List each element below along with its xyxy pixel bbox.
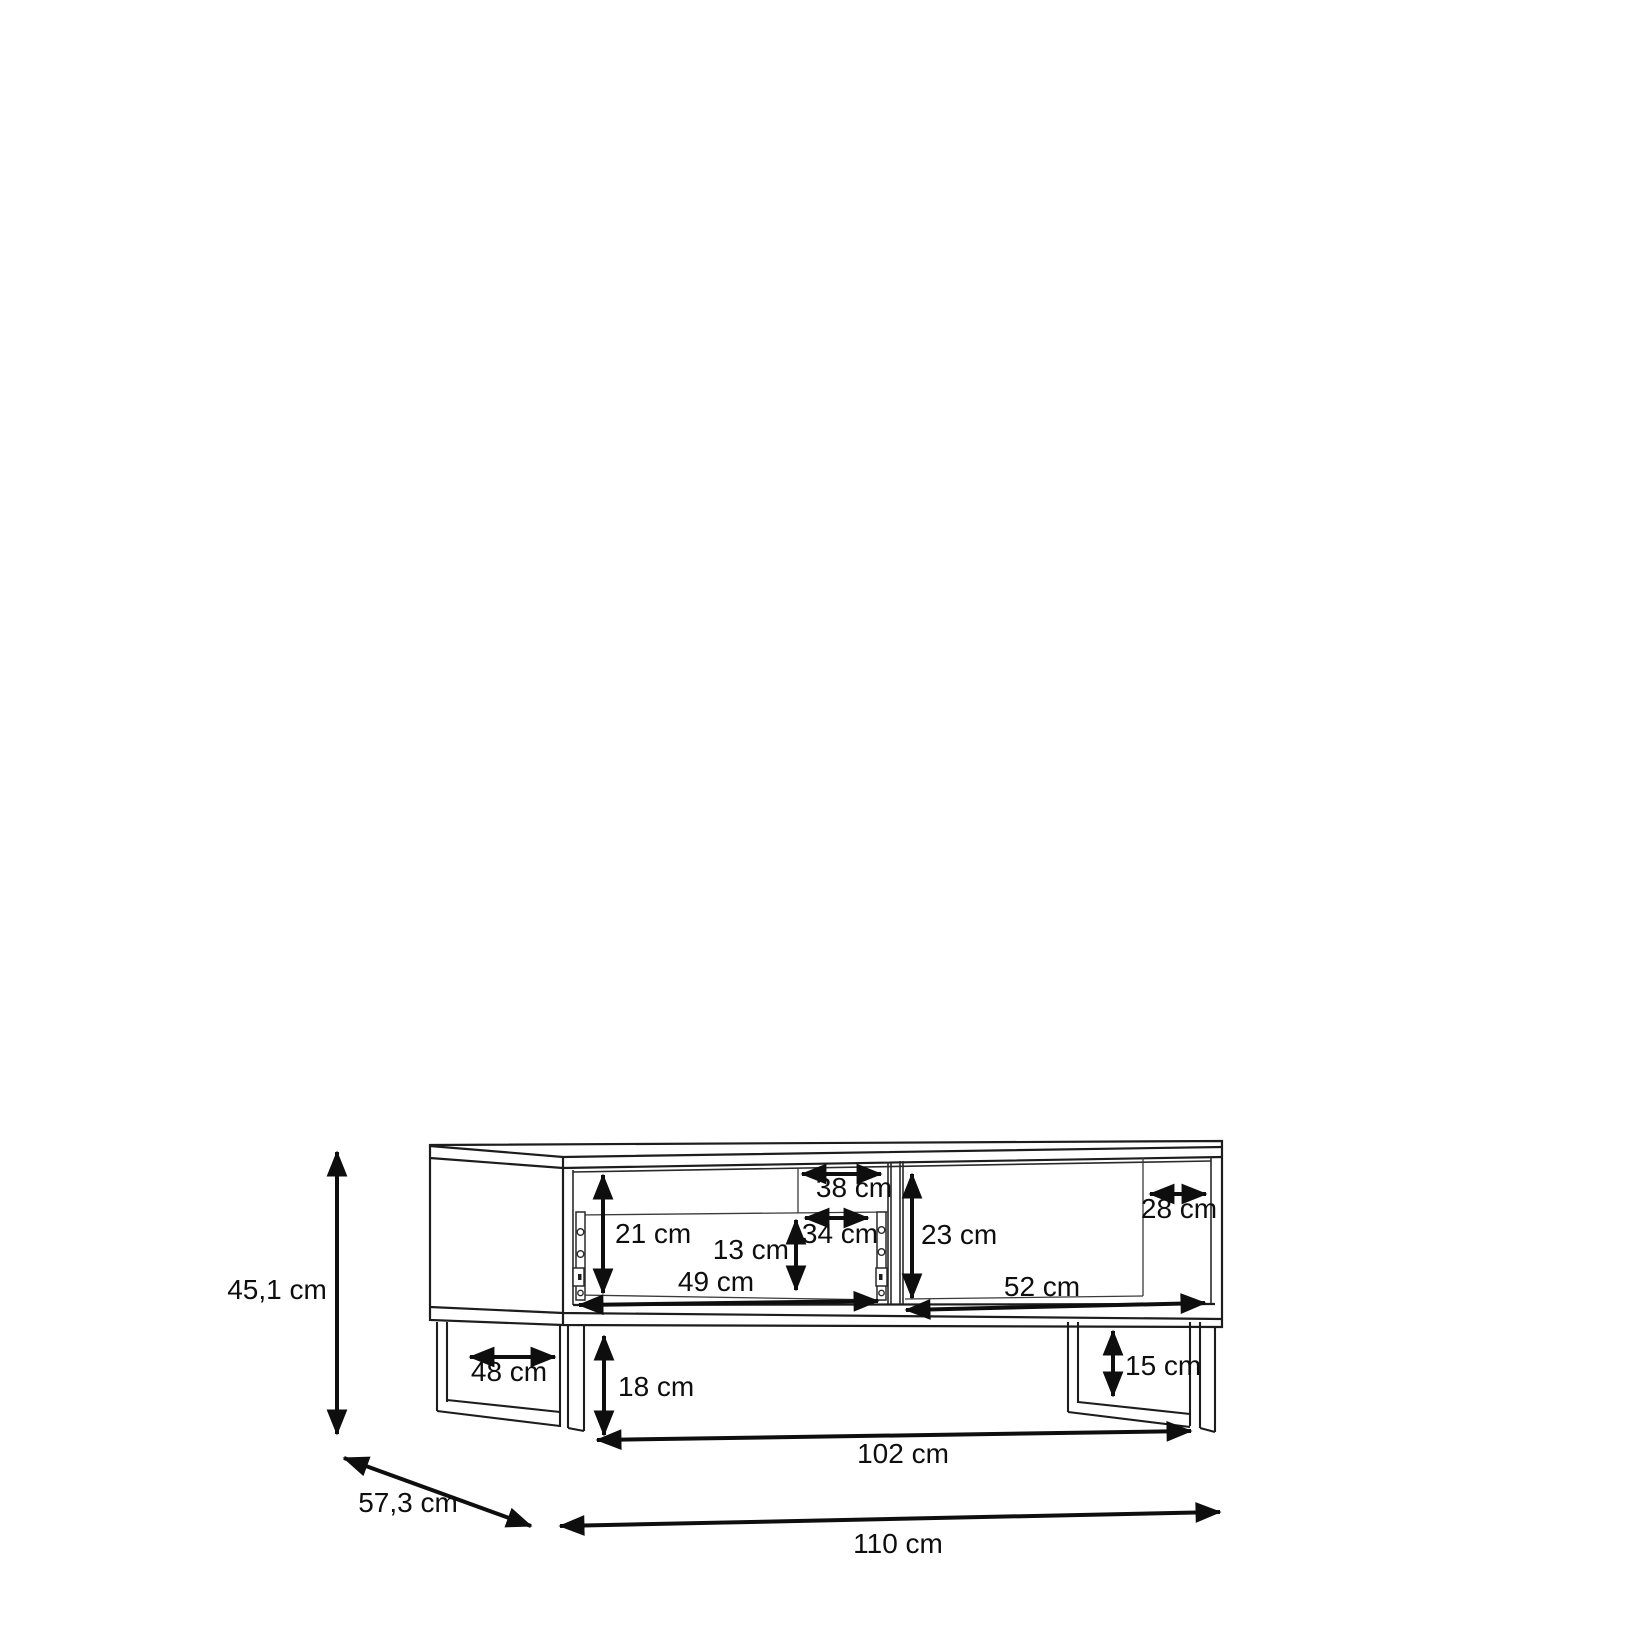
dim-label: 34 cm — [802, 1218, 878, 1249]
dim-leg-inner-height: 15 cm — [1113, 1331, 1201, 1396]
dim-label: 45,1 cm — [227, 1274, 327, 1305]
left-leg-front-post — [560, 1325, 584, 1431]
screw-hole — [577, 1229, 584, 1236]
dim-label: 57,3 cm — [358, 1487, 458, 1518]
diagram-svg: 45,1 cm 57,3 cm 110 cm 102 cm 18 cm 48 c… — [0, 0, 1648, 1648]
left-leg-back-post — [437, 1322, 447, 1411]
dim-label: 15 cm — [1125, 1350, 1201, 1381]
screw-hole — [878, 1227, 885, 1234]
dim-label: 102 cm — [857, 1438, 949, 1469]
dim-label: 28 cm — [1141, 1193, 1217, 1224]
dim-label: 38 cm — [816, 1172, 892, 1203]
top-panel-front-edge — [430, 1146, 1222, 1157]
dim-label: 110 cm — [853, 1528, 943, 1559]
screw-hole — [578, 1290, 583, 1295]
right-leg-left-post — [1068, 1322, 1078, 1412]
bracket-slot — [578, 1274, 582, 1280]
drawer-runner-left — [573, 1212, 585, 1300]
dim-arrow — [560, 1512, 1220, 1526]
dim-leg-inner-depth: 48 cm — [470, 1356, 555, 1387]
dim-overall-height: 45,1 cm — [227, 1152, 337, 1434]
dim-underbody-clearance: 18 cm — [604, 1336, 694, 1435]
dim-label: 21 cm — [615, 1218, 691, 1249]
dim-overall-depth: 57,3 cm — [344, 1458, 531, 1526]
dim-label: 48 cm — [471, 1356, 547, 1387]
dim-base-span: 102 cm — [597, 1431, 1191, 1469]
bracket-slot — [879, 1274, 883, 1280]
screw-hole — [878, 1249, 885, 1256]
dim-right-opening-height: 23 cm — [912, 1174, 997, 1298]
dim-label: 23 cm — [921, 1219, 997, 1250]
screw-hole — [577, 1251, 584, 1258]
furniture-dimension-diagram: 45,1 cm 57,3 cm 110 cm 102 cm 18 cm 48 c… — [0, 0, 1648, 1648]
dim-label: 18 cm — [618, 1371, 694, 1402]
dim-label: 49 cm — [678, 1266, 754, 1297]
runner-rail — [877, 1212, 886, 1300]
dim-right-back-depth: 28 cm — [1141, 1193, 1217, 1224]
dim-left-back-top-width: 38 cm — [802, 1172, 892, 1203]
dim-label: 52 cm — [1004, 1271, 1080, 1302]
dim-overall-width: 110 cm — [560, 1512, 1220, 1559]
screw-hole — [879, 1290, 884, 1295]
dim-label: 13 cm — [713, 1234, 789, 1265]
left-leg-bottom-bar — [437, 1400, 584, 1431]
dim-left-back-cutout-width: 34 cm — [802, 1218, 878, 1249]
right-leg-bottom-bar — [1068, 1402, 1215, 1432]
bottom-panel-edge — [430, 1307, 1222, 1319]
left-back-shelf-line — [577, 1212, 888, 1215]
